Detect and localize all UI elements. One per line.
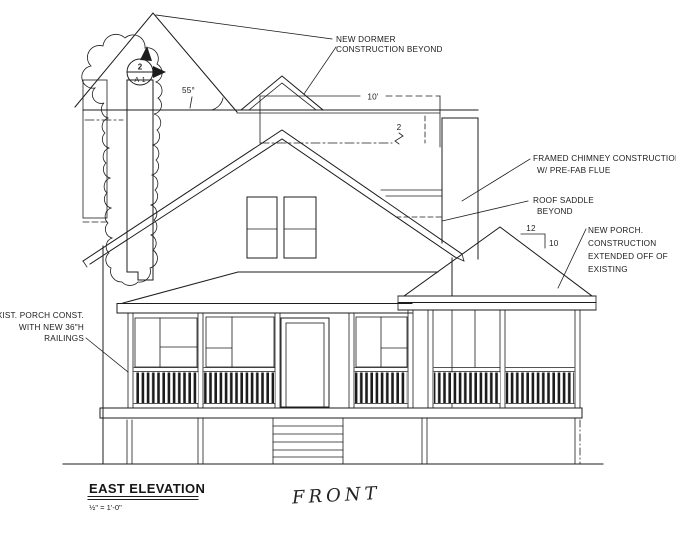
gable-walls — [103, 246, 475, 464]
bay-window — [356, 317, 407, 367]
title-block: EAST ELEVATION ½" = 1'-0" — [88, 481, 205, 512]
leader-lines-chimney — [442, 159, 530, 221]
railing-balusters — [204, 373, 275, 404]
label-new-porch-line3: EXTENDED OFF OF — [588, 252, 668, 261]
detail-marker-arrow-right-icon — [153, 66, 166, 78]
framed-chimney — [442, 118, 478, 259]
eave-lines — [83, 110, 478, 120]
label-new-porch-line1: NEW PORCH. — [588, 226, 643, 235]
label-framed-chimney-line1: FRAMED CHIMNEY CONSTRUCTION — [533, 154, 676, 163]
leader-line-exist-porch — [86, 338, 128, 372]
gable-angle-label: 55° — [182, 86, 195, 95]
gable-triangle-beyond — [75, 13, 237, 112]
detail-sheet-number: A-1 — [134, 75, 145, 84]
gable-window-left — [247, 197, 277, 258]
entry-steps — [273, 418, 343, 464]
angle-annotation: 55° — [182, 86, 223, 110]
bay-window — [135, 318, 197, 367]
pitch-run-label: 12 — [526, 224, 536, 233]
dormer-gable — [241, 76, 323, 110]
label-roof-saddle-line2: BEYOND — [537, 207, 573, 216]
leader-lines-dormer — [156, 15, 336, 94]
main-roof — [83, 130, 464, 267]
railing-balusters — [434, 373, 500, 404]
gable-windows — [247, 197, 316, 258]
elevation-sheet: 2 A-1 55° 10' 2 NEW DORMER CONSTRUCTION … — [0, 0, 676, 541]
pitch-marker: 12 10 — [521, 224, 559, 248]
label-new-dormer-line1: NEW DORMER — [336, 35, 396, 44]
railing-balusters — [355, 373, 407, 404]
label-new-porch-line4: EXISTING — [588, 265, 628, 274]
porch-floor — [100, 408, 582, 418]
elevation-drawing: 2 A-1 55° 10' 2 NEW DORMER CONSTRUCTION … — [0, 0, 676, 541]
label-framed-chimney-line2: W/ PRE-FAB FLUE — [537, 166, 611, 175]
railing-balusters — [134, 373, 198, 404]
entry-door — [281, 318, 329, 407]
dormer-width-label: 10' — [367, 93, 379, 102]
label-new-dormer-line2: CONSTRUCTION BEYOND — [336, 45, 443, 54]
dormer-dimension: 10' 2 — [260, 93, 440, 148]
dormer-step-label: 2 — [397, 123, 402, 132]
hip-roof-new-porch — [398, 227, 596, 310]
pitch-rise-label: 10 — [549, 239, 559, 248]
label-new-porch-line2: CONSTRUCTION — [588, 239, 656, 248]
label-roof-saddle-line1: ROOF SADDLE — [533, 196, 594, 205]
drawing-title: EAST ELEVATION — [89, 481, 205, 496]
foundation-piers — [127, 418, 580, 464]
gable-window-right — [284, 197, 316, 258]
drawing-scale: ½" = 1'-0" — [89, 503, 122, 512]
leader-line-new-porch — [558, 229, 586, 288]
label-exist-porch-line3: RAILINGS — [44, 334, 84, 343]
label-exist-porch-line1: EXIST. PORCH CONST. — [0, 311, 84, 320]
detail-number: 2 — [138, 63, 143, 72]
existing-porch-roof — [117, 272, 438, 313]
label-exist-porch-line2: WITH NEW 36"H — [19, 323, 84, 332]
railing-balusters — [506, 373, 574, 404]
bay-window — [206, 317, 274, 367]
orientation-label: FRONT — [291, 483, 382, 509]
bay-windows — [135, 317, 407, 367]
